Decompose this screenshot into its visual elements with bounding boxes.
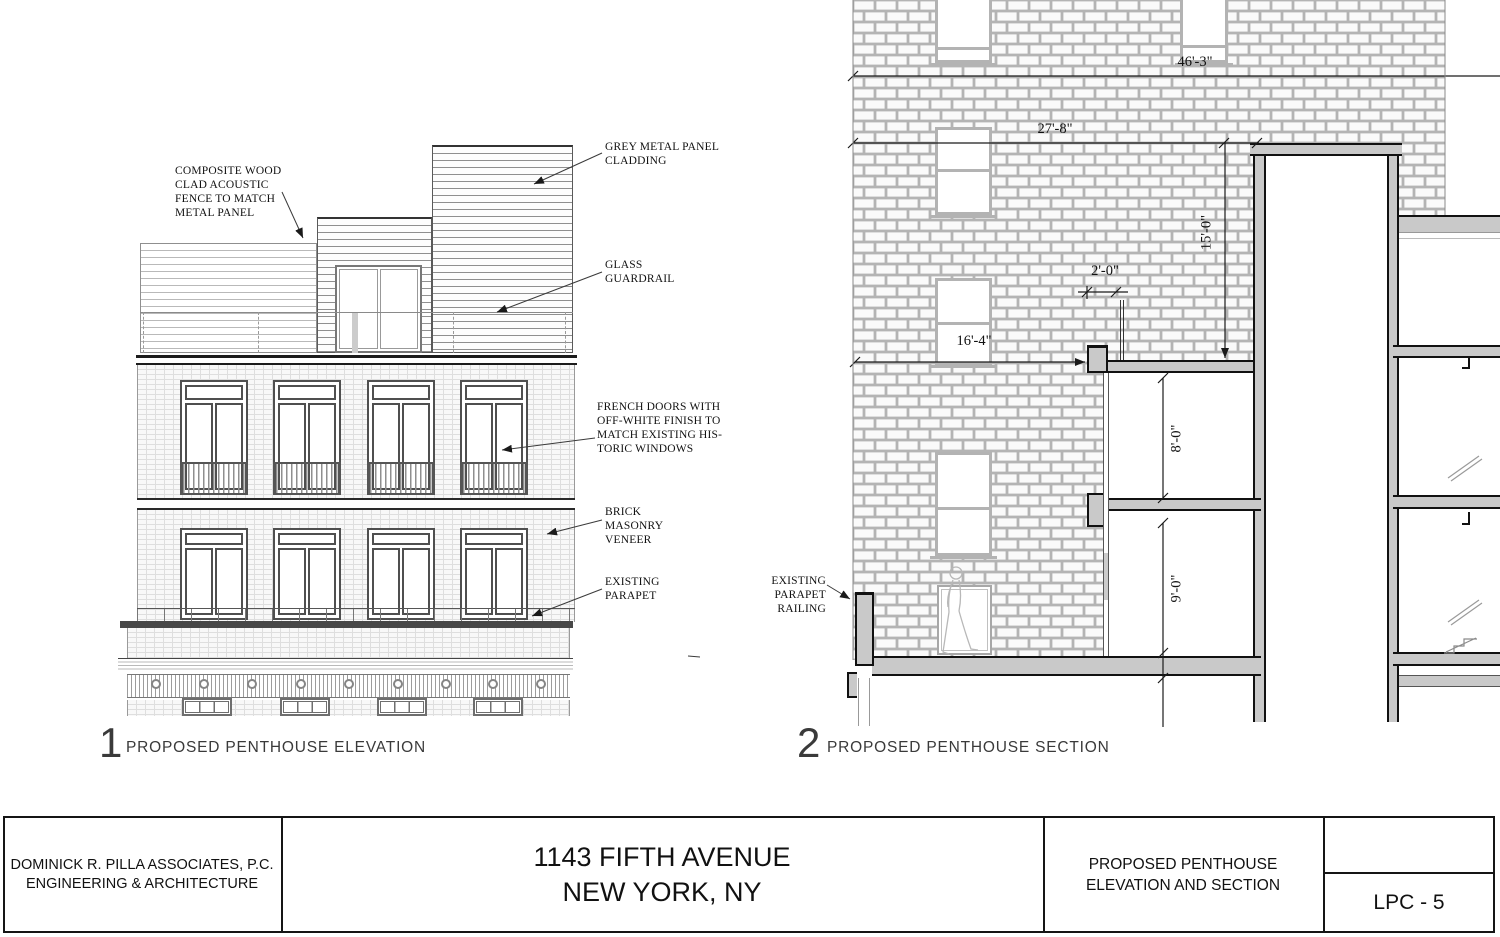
firm-name: DOMINICK R. PILLA ASSOCIATES, P.C.	[11, 856, 274, 875]
sheet-number: LPC - 5	[1373, 891, 1444, 915]
drawing-sheet: COMPOSITE WOOD CLAD ACOUSTIC FENCE TO MA…	[0, 0, 1500, 937]
project-cell: 1143 FIFTH AVENUE NEW YORK, NY	[281, 816, 1043, 933]
firm-cell: DOMINICK R. PILLA ASSOCIATES, P.C. ENGIN…	[3, 816, 281, 933]
sheet-title-cell: PROPOSED PENTHOUSE ELEVATION AND SECTION	[1043, 816, 1323, 933]
sheet-title-line2: ELEVATION AND SECTION	[1086, 875, 1280, 896]
sheet-title-line1: PROPOSED PENTHOUSE	[1089, 854, 1278, 875]
project-city: NEW YORK, NY	[562, 875, 761, 910]
project-address: 1143 FIFTH AVENUE	[533, 840, 790, 875]
title-block: DOMINICK R. PILLA ASSOCIATES, P.C. ENGIN…	[0, 0, 1500, 937]
firm-tagline: ENGINEERING & ARCHITECTURE	[26, 875, 258, 894]
sheet-number-cell: LPC - 5	[1323, 872, 1495, 933]
